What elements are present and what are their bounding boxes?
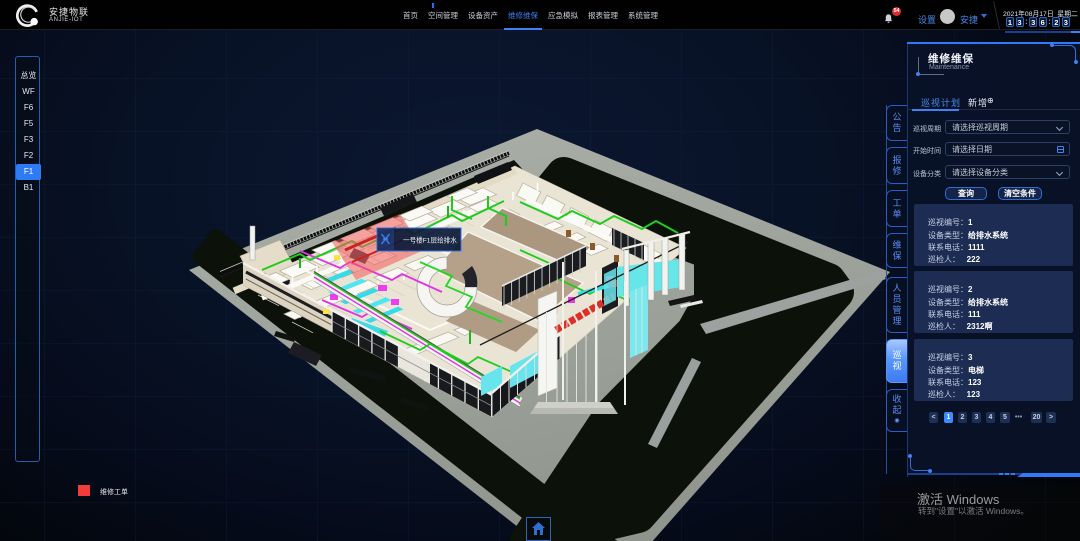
svg-text:一号楼F1层给排水: 一号楼F1层给排水 xyxy=(403,236,457,245)
